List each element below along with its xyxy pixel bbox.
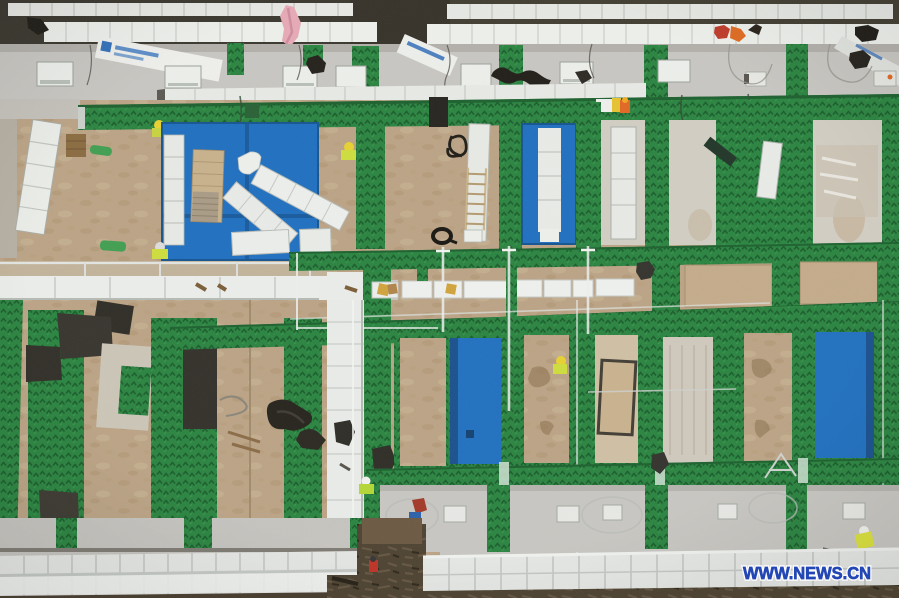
svg-text:WWW.NEWS.CN: WWW.NEWS.CN — [743, 563, 871, 583]
